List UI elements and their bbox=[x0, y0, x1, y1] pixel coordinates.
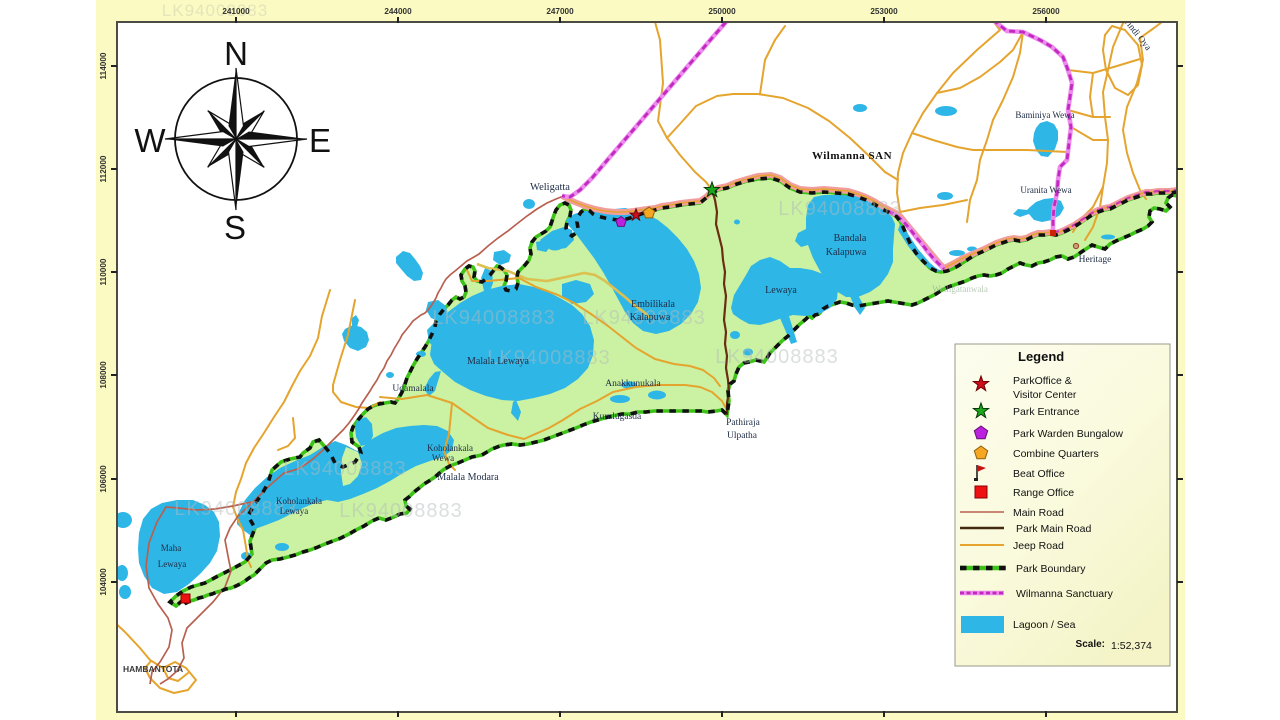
svg-text:LK94008883: LK94008883 bbox=[283, 458, 406, 480]
svg-text:244000: 244000 bbox=[384, 7, 412, 16]
svg-text:HAMBANTOTA: HAMBANTOTA bbox=[123, 664, 183, 674]
svg-text:253000: 253000 bbox=[870, 7, 898, 16]
svg-text:104000: 104000 bbox=[99, 568, 108, 596]
svg-text:Jeep Road: Jeep Road bbox=[1013, 540, 1064, 552]
svg-text:Heritage: Heritage bbox=[1079, 255, 1112, 265]
svg-text:Pathiraja: Pathiraja bbox=[726, 418, 761, 428]
svg-text:112000: 112000 bbox=[99, 155, 108, 182]
svg-text:Park Main Road: Park Main Road bbox=[1016, 523, 1091, 535]
svg-text:Wilmanna Sanctuary: Wilmanna Sanctuary bbox=[1016, 588, 1114, 600]
svg-text:Wewa: Wewa bbox=[432, 453, 454, 463]
svg-text:Lewaya: Lewaya bbox=[765, 285, 797, 296]
svg-text:108000: 108000 bbox=[99, 361, 108, 389]
svg-text:Kalapuwa: Kalapuwa bbox=[826, 247, 867, 258]
svg-text:Kurulugasda: Kurulugasda bbox=[593, 412, 642, 422]
svg-text:247000: 247000 bbox=[546, 7, 574, 16]
svg-text:Combine Quarters: Combine Quarters bbox=[1013, 448, 1099, 460]
svg-text:Beat Office: Beat Office bbox=[1013, 468, 1065, 480]
svg-text:Udamalala: Udamalala bbox=[392, 384, 434, 394]
svg-text:241000: 241000 bbox=[222, 7, 250, 16]
svg-text:Anakkunukala: Anakkunukala bbox=[605, 379, 661, 389]
svg-text:Embilikala: Embilikala bbox=[631, 299, 675, 310]
svg-text:106000: 106000 bbox=[99, 465, 108, 493]
svg-text:LK94008883: LK94008883 bbox=[778, 198, 901, 220]
svg-text:LK94008883: LK94008883 bbox=[339, 500, 462, 522]
svg-text:Range Office: Range Office bbox=[1013, 487, 1074, 499]
svg-text:Maha: Maha bbox=[161, 543, 182, 553]
svg-text:256000: 256000 bbox=[1032, 7, 1060, 16]
svg-text:Bandala: Bandala bbox=[834, 233, 867, 244]
svg-text:Ulpatha: Ulpatha bbox=[727, 431, 758, 441]
svg-text:Visitor Center: Visitor Center bbox=[1013, 389, 1077, 401]
svg-text:Kalapuwa: Kalapuwa bbox=[630, 312, 671, 323]
svg-text:Lagoon / Sea: Lagoon / Sea bbox=[1013, 619, 1076, 631]
svg-text:LK94008883: LK94008883 bbox=[715, 346, 838, 368]
svg-text:Weligatta: Weligatta bbox=[530, 182, 570, 193]
svg-text:Malala Modara: Malala Modara bbox=[437, 472, 499, 483]
svg-text:Lewaya: Lewaya bbox=[280, 506, 308, 516]
svg-text:Lewaya: Lewaya bbox=[158, 559, 186, 569]
svg-text:1:52,374: 1:52,374 bbox=[1111, 640, 1152, 652]
svg-text:Malala Lewaya: Malala Lewaya bbox=[467, 356, 529, 367]
svg-text:Koholankala: Koholankala bbox=[427, 443, 473, 453]
svg-text:114000: 114000 bbox=[99, 52, 108, 79]
svg-text:250000: 250000 bbox=[708, 7, 736, 16]
svg-text:S: S bbox=[224, 209, 246, 246]
svg-text:Main Road: Main Road bbox=[1013, 507, 1064, 519]
svg-text:Park Warden Bungalow: Park Warden Bungalow bbox=[1013, 428, 1123, 440]
svg-text:110000: 110000 bbox=[99, 258, 108, 285]
svg-text:N: N bbox=[224, 35, 248, 72]
svg-text:LK94008883: LK94008883 bbox=[162, 1, 268, 20]
svg-text:Baminiya Wewa: Baminiya Wewa bbox=[1015, 110, 1074, 120]
svg-text:E: E bbox=[309, 122, 331, 159]
svg-text:Koholankala: Koholankala bbox=[276, 496, 322, 506]
svg-text:Welligatanwala: Welligatanwala bbox=[932, 284, 988, 294]
svg-text:Park Boundary: Park Boundary bbox=[1016, 563, 1086, 575]
svg-text:Legend: Legend bbox=[1018, 349, 1064, 364]
svg-text:Wilmanna SAN: Wilmanna SAN bbox=[812, 150, 892, 162]
svg-text:Scale:: Scale: bbox=[1076, 639, 1105, 650]
svg-text:Uranita Wewa: Uranita Wewa bbox=[1020, 185, 1071, 195]
svg-text:W: W bbox=[134, 122, 166, 159]
svg-text:ParkOffice &: ParkOffice & bbox=[1013, 375, 1072, 387]
svg-text:Park Entrance: Park Entrance bbox=[1013, 406, 1080, 418]
svg-text:LK94008883: LK94008883 bbox=[432, 307, 555, 329]
